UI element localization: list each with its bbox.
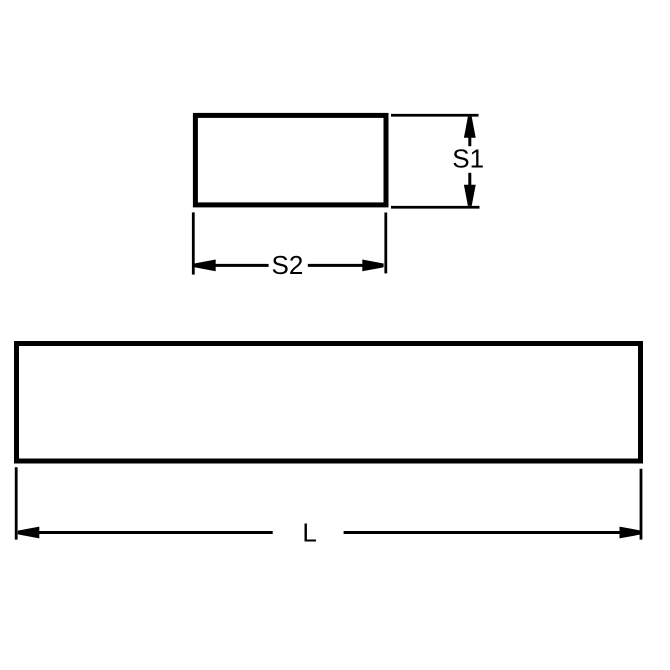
svg-text:S2: S2 <box>271 250 303 280</box>
svg-text:L: L <box>302 517 316 547</box>
svg-text:S1: S1 <box>452 143 484 173</box>
